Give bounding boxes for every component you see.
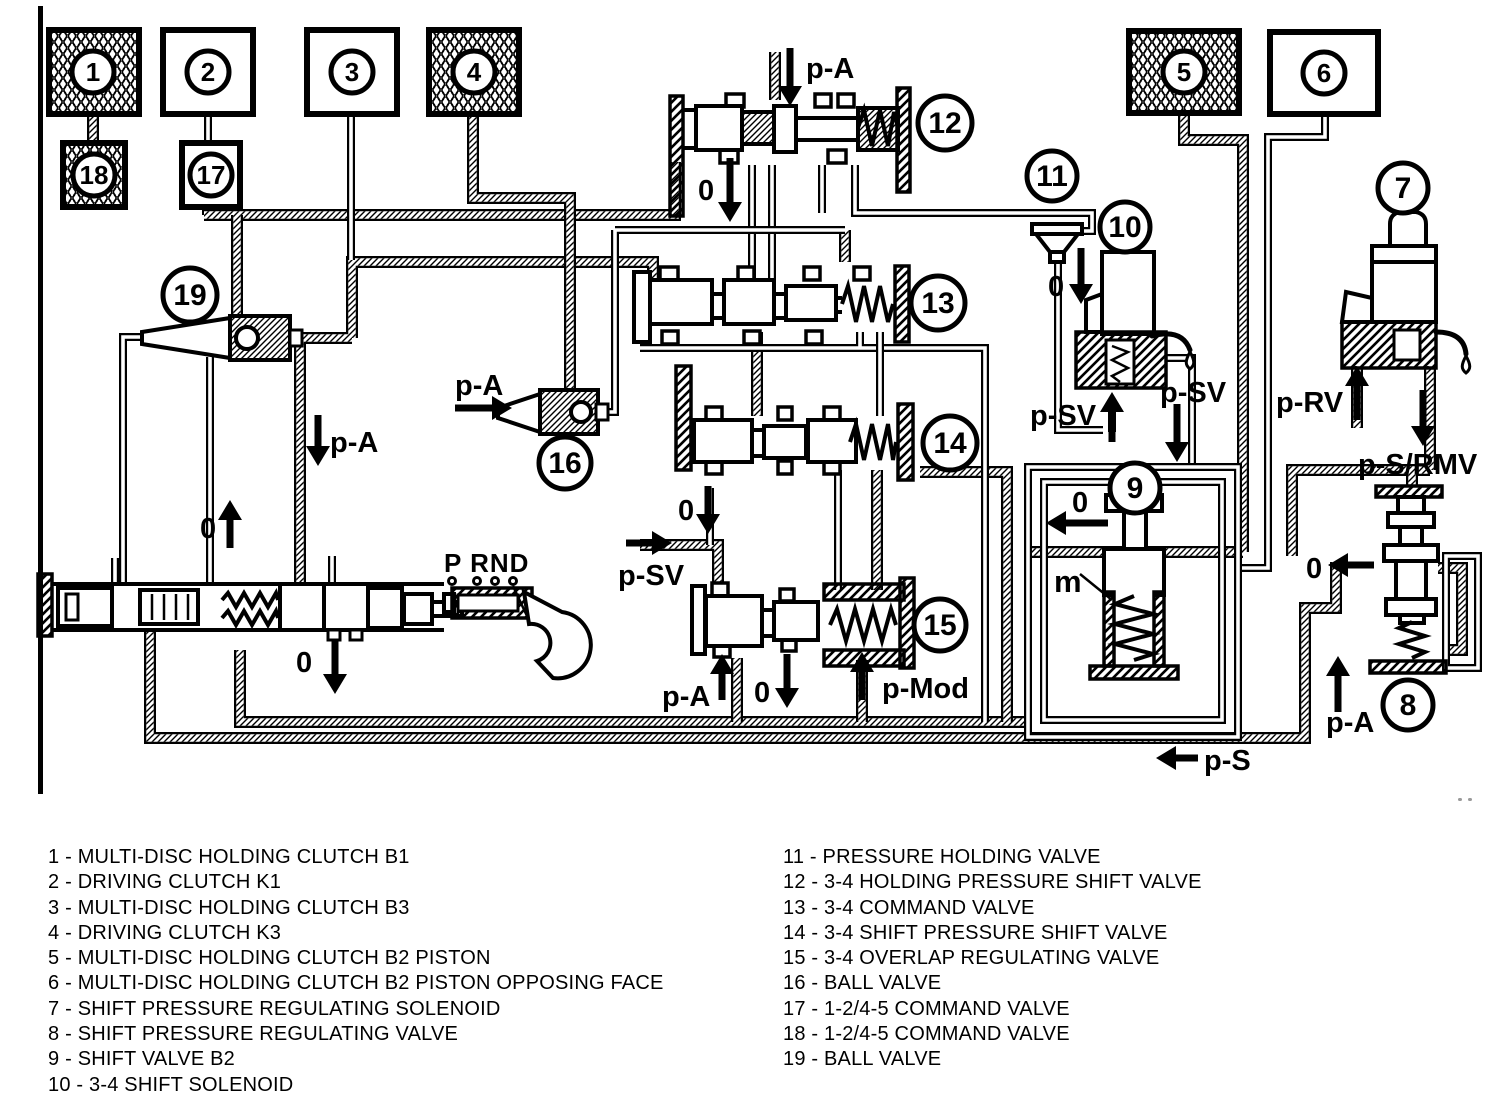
legend-item: 7 - SHIFT PRESSURE REGULATING SOLENOID — [48, 997, 664, 1022]
label-selector-positions: P RND — [444, 548, 529, 578]
label-p-sv-into-15: p-SV — [618, 560, 685, 592]
component-circle-14: 14 — [923, 416, 977, 470]
svg-text:13: 13 — [921, 287, 954, 320]
label-zero-left-up: 0 — [200, 513, 216, 545]
component-circle-7: 7 — [1378, 163, 1428, 213]
legend-column-left: 1 - MULTI-DISC HOLDING CLUTCH B1 2 - DRI… — [48, 845, 664, 1098]
legend-item: 13 - 3-4 COMMAND VALVE — [783, 896, 1202, 921]
legend-item: 19 - BALL VALVE — [783, 1047, 1202, 1072]
arrow-p-sv-down-from-10 — [1165, 404, 1189, 462]
manual-selector-valve — [38, 574, 591, 678]
arrow-p-sv-into-15-right — [626, 531, 672, 555]
label-p-a-left-pipe: p-A — [330, 427, 378, 459]
page-border-line — [38, 6, 43, 794]
svg-text:7: 7 — [1395, 172, 1412, 205]
svg-text:8: 8 — [1400, 689, 1417, 722]
label-p-a-up-8: p-A — [1326, 707, 1374, 739]
component-circle-15: 15 — [914, 599, 966, 651]
scan-artifact-dot — [1458, 798, 1462, 801]
svg-text:15: 15 — [923, 609, 956, 642]
component-circle-8: 8 — [1383, 680, 1433, 730]
svg-text:18: 18 — [80, 160, 109, 190]
arrow-zero-above-15-down — [696, 486, 720, 534]
label-p-a-below-15: p-A — [662, 681, 710, 713]
valve-8-shift-pressure-regulating — [1370, 486, 1446, 673]
svg-text:2: 2 — [201, 57, 215, 87]
arrow-p-a-left-down — [306, 415, 330, 466]
component-circle-17: 17 — [190, 154, 232, 196]
component-circle-11: 11 — [1027, 151, 1077, 201]
label-zero-below-15: 0 — [754, 677, 770, 709]
svg-text:4: 4 — [467, 57, 482, 87]
component-circle-6: 6 — [1303, 52, 1345, 94]
legend-item: 4 - DRIVING CLUTCH K3 — [48, 921, 664, 946]
detent-position-mark — [474, 578, 481, 585]
label-p-a-top: p-A — [806, 53, 854, 85]
svg-text:1: 1 — [86, 57, 100, 87]
label-zero-below-mv: 0 — [296, 647, 312, 679]
svg-text:10: 10 — [1108, 211, 1141, 244]
label-p-sv-down-10: p-SV — [1160, 377, 1227, 409]
detent-position-mark — [510, 578, 517, 585]
oil-droplet-icon — [1186, 352, 1194, 369]
legend-item: 18 - 1-2/4-5 COMMAND VALVE — [783, 1022, 1202, 1047]
label-p-s-bottom: p-S — [1204, 745, 1251, 777]
component-circle-5: 5 — [1163, 51, 1205, 93]
arrow-zero-left-up — [218, 500, 242, 548]
label-zero-above-15: 0 — [678, 495, 694, 527]
svg-text:11: 11 — [1036, 160, 1068, 193]
svg-text:16: 16 — [548, 447, 581, 480]
arrow-p-a-top-down — [778, 48, 802, 106]
label-zero-under-12: 0 — [698, 175, 714, 207]
legend-item: 6 - MULTI-DISC HOLDING CLUTCH B2 PISTON … — [48, 971, 664, 996]
arrow-p-sv-up-into-10 — [1100, 392, 1124, 442]
svg-text:6: 6 — [1317, 58, 1331, 88]
component-circle-12: 12 — [918, 96, 972, 150]
legend-item: 14 - 3-4 SHIFT PRESSURE SHIFT VALVE — [783, 921, 1202, 946]
svg-text:5: 5 — [1177, 57, 1191, 87]
arrow-p-rv-up — [1345, 366, 1369, 420]
component-circle-19: 19 — [163, 268, 217, 322]
legend-item: 16 - BALL VALVE — [783, 971, 1202, 996]
arrow-p-s-bottom-left — [1156, 746, 1198, 770]
legend-item: 17 - 1-2/4-5 COMMAND VALVE — [783, 997, 1202, 1022]
component-circle-1: 1 — [72, 51, 114, 93]
legend-item: 5 - MULTI-DISC HOLDING CLUTCH B2 PISTON — [48, 946, 664, 971]
arrow-p-a-below-15-up — [710, 654, 734, 700]
legend-item: 15 - 3-4 OVERLAP REGULATING VALVE — [783, 946, 1202, 971]
label-p-rv: p-RV — [1276, 387, 1344, 419]
arrow-zero-under-11-down — [1069, 248, 1093, 304]
label-p-mod: p-Mod — [882, 673, 969, 705]
arrow-zero-under-12-down — [718, 158, 742, 222]
schematic-page: 1 2 3 4 5 6 17 18 7 8 9 10 11 12 13 14 1… — [0, 0, 1504, 1102]
svg-text:17: 17 — [197, 160, 226, 190]
ball-valve-19 — [142, 316, 302, 360]
legend-item: 1 - MULTI-DISC HOLDING CLUTCH B1 — [48, 845, 664, 870]
legend-item: 10 - 3-4 SHIFT SOLENOID — [48, 1073, 664, 1098]
solenoid-10-3-4-shift — [1076, 252, 1194, 388]
svg-text:9: 9 — [1127, 472, 1144, 505]
legend-item: 12 - 3-4 HOLDING PRESSURE SHIFT VALVE — [783, 870, 1202, 895]
arrow-zero-below-15-down — [775, 654, 799, 708]
legend-item: 8 - SHIFT PRESSURE REGULATING VALVE — [48, 1022, 664, 1047]
component-circle-16: 16 — [539, 437, 591, 489]
label-zero-under-11: 0 — [1048, 271, 1064, 303]
label-zero-left-9: 0 — [1072, 487, 1088, 519]
selector-lever — [444, 578, 591, 679]
arrow-zero-below-mv-down — [323, 640, 347, 694]
label-p-s-rmv: p-S/RMV — [1358, 449, 1478, 481]
arrow-p-a-up-8 — [1326, 656, 1350, 712]
valve-11-pressure-holding — [1032, 224, 1082, 262]
ball-valve-16 — [498, 390, 608, 434]
component-circle-4: 4 — [453, 51, 495, 93]
detent-position-mark — [492, 578, 499, 585]
label-m-valve-9: m — [1054, 564, 1082, 599]
valve-15-overlap-regulating — [692, 578, 914, 668]
legend-column-right: 11 - PRESSURE HOLDING VALVE 12 - 3-4 HOL… — [783, 845, 1202, 1073]
detent-position-mark — [449, 578, 456, 585]
label-zero-left-8: 0 — [1306, 553, 1322, 585]
svg-text:14: 14 — [933, 427, 967, 460]
legend-item: 3 - MULTI-DISC HOLDING CLUTCH B3 — [48, 896, 664, 921]
component-circle-18: 18 — [73, 154, 115, 196]
legend-item: 9 - SHIFT VALVE B2 — [48, 1047, 664, 1072]
component-circle-3: 3 — [331, 51, 373, 93]
oil-droplet-icon — [1462, 356, 1470, 373]
svg-text:12: 12 — [928, 107, 961, 140]
component-circle-10: 10 — [1100, 202, 1150, 252]
scan-artifact-dot — [1468, 798, 1472, 801]
svg-text:3: 3 — [345, 57, 359, 87]
component-circle-2: 2 — [187, 51, 229, 93]
legend-item: 11 - PRESSURE HOLDING VALVE — [783, 845, 1202, 870]
legend-item: 2 - DRIVING CLUTCH K1 — [48, 870, 664, 895]
solenoid-7-shift-pressure-regulating — [1342, 212, 1470, 373]
component-circle-13: 13 — [911, 276, 965, 330]
svg-text:19: 19 — [173, 279, 206, 312]
label-p-a-into-16: p-A — [455, 370, 503, 402]
component-circle-9: 9 — [1110, 463, 1160, 513]
label-p-sv-up-10: p-SV — [1030, 400, 1097, 432]
